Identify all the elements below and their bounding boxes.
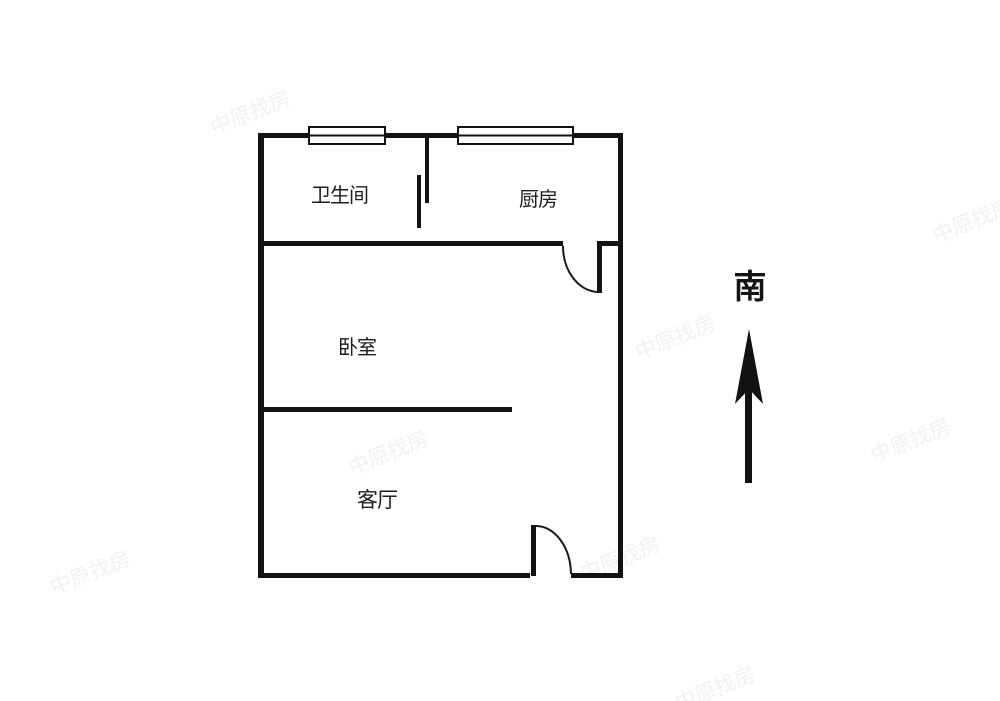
wall-bedroom-living-divider [258,407,512,412]
wall-bottom-right-segment [571,573,623,578]
wall-left [258,133,264,578]
wall-bathroom-kitchen-divider [425,135,429,203]
compass: 南 [700,260,800,490]
living-room-door-arc [536,526,571,574]
floor-plan-image: 卫生间 厨房 卧室 客厅 南 中原找房 中原找房 中原找房 中原找房 中原找房 … [0,0,1000,701]
kitchen-label: 厨房 [519,183,557,212]
kitchen-door-arc [563,246,597,292]
bedroom-label: 卧室 [338,331,376,360]
bathroom-door-leaf [417,175,421,228]
compass-arrow-icon [700,260,800,490]
living-room-door-leaf [531,525,536,576]
wall-bottom-left-segment [258,573,530,578]
wall-mid-horizontal [258,241,563,246]
wall-right [618,133,623,578]
living-room-label: 客厅 [357,484,397,514]
arrow-shaft [745,385,752,483]
floor-plan-drawing [0,0,1000,701]
kitchen-door-leaf [597,241,602,293]
bathroom-label: 卫生间 [311,179,368,208]
